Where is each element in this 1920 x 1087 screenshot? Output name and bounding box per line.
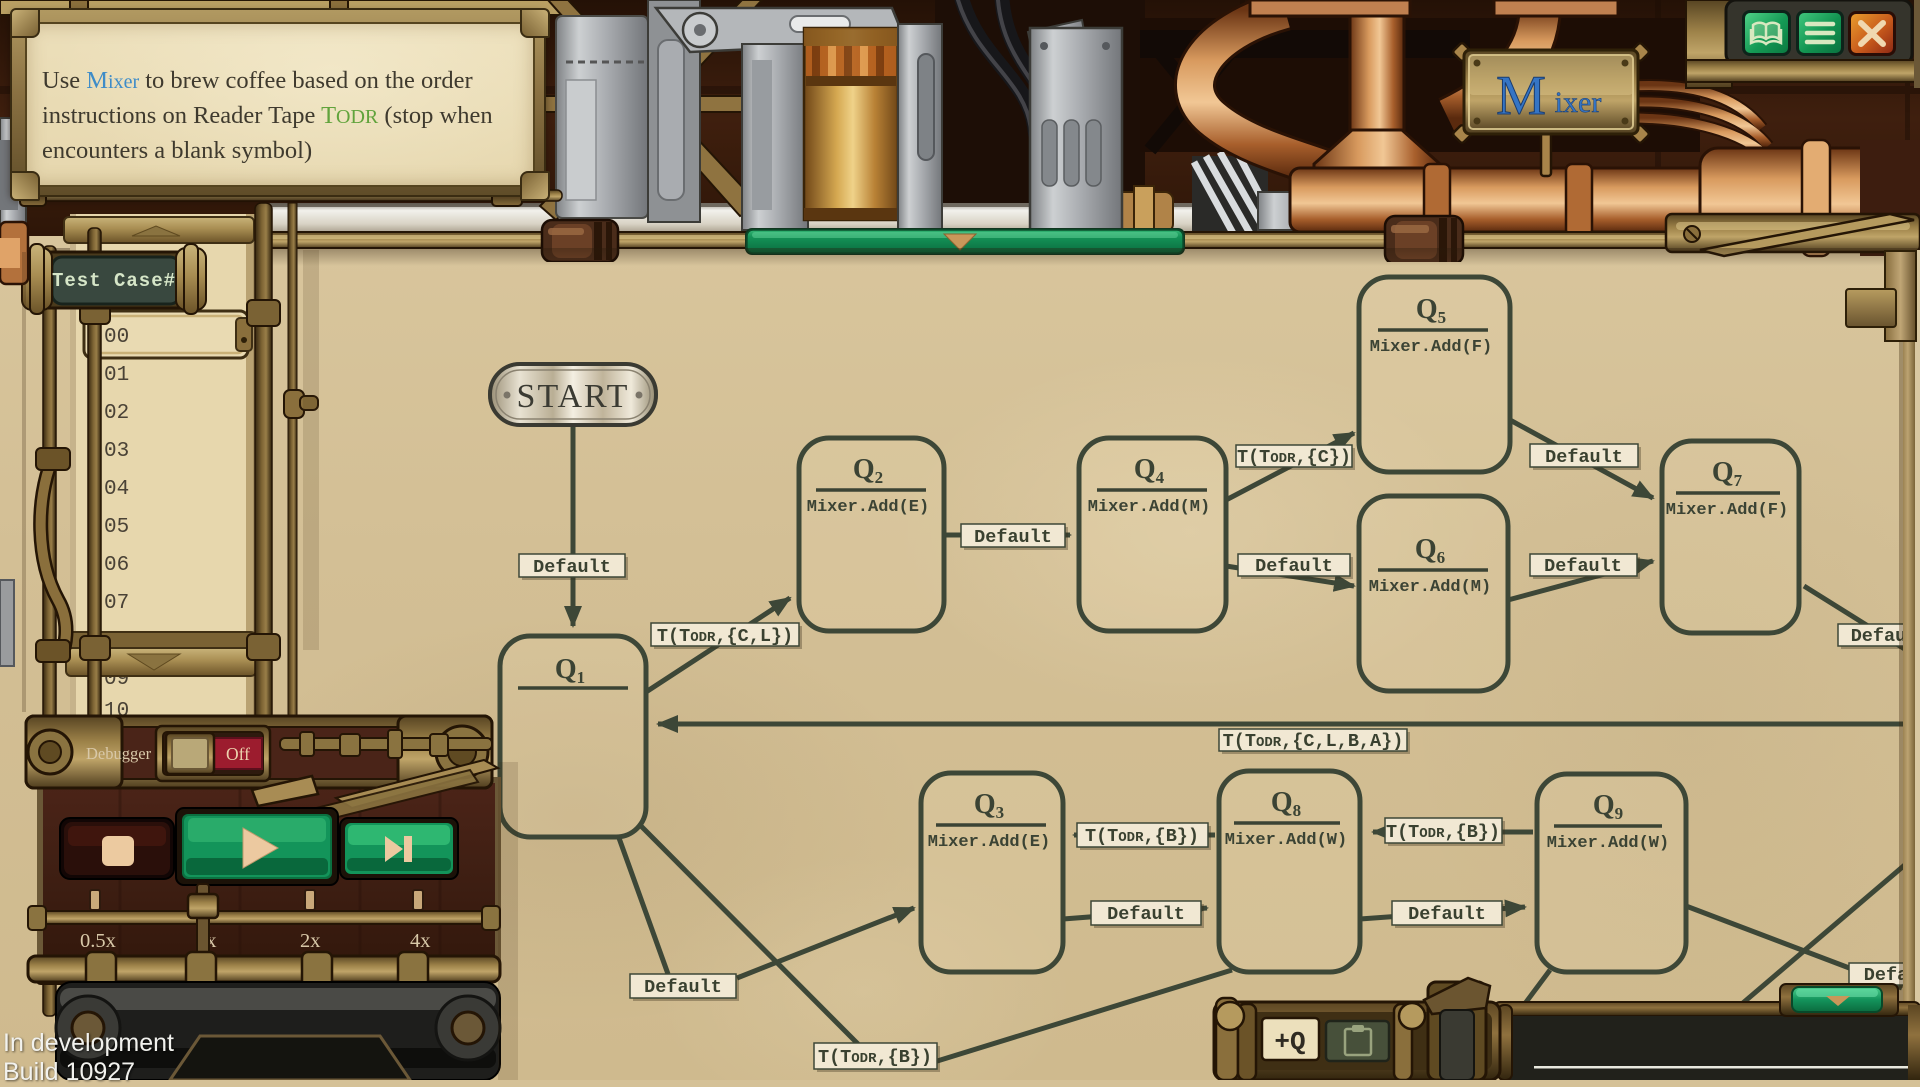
svg-text:Default: Default	[974, 527, 1052, 548]
svg-text:03: 03	[104, 440, 129, 463]
svg-text:Mixer.Add(F): Mixer.Add(F)	[1370, 338, 1492, 357]
svg-text:Default: Default	[1545, 447, 1623, 468]
svg-text:Mixer.Add(M): Mixer.Add(M)	[1088, 498, 1210, 517]
svg-text:05: 05	[104, 516, 129, 539]
svg-text:4x: 4x	[410, 930, 431, 952]
svg-text:T(TODR,{C,L}): T(TODR,{C,L})	[657, 626, 793, 647]
svg-text:Default: Default	[1255, 556, 1333, 577]
svg-text:+Q: +Q	[1274, 1027, 1305, 1057]
svg-text:Mixer.Add(F): Mixer.Add(F)	[1666, 501, 1788, 520]
svg-text:Test Case#: Test Case#	[52, 270, 176, 292]
svg-text:04: 04	[104, 478, 129, 501]
svg-text:02: 02	[104, 402, 129, 425]
svg-text:T(TODR,{C,L,B,A}): T(TODR,{C,L,B,A})	[1223, 731, 1404, 752]
svg-text:Default: Default	[1107, 904, 1185, 925]
svg-text:Mixer.Add(W): Mixer.Add(W)	[1225, 831, 1347, 850]
svg-text:Mixer.Add(E): Mixer.Add(E)	[928, 833, 1050, 852]
svg-text:Default: Default	[1544, 556, 1622, 577]
svg-text:Mixer.Add(M): Mixer.Add(M)	[1369, 578, 1491, 597]
svg-text:00: 00	[104, 326, 129, 349]
svg-text:0.5x: 0.5x	[80, 930, 116, 952]
svg-text:T(TODR,{C}): T(TODR,{C})	[1237, 447, 1351, 468]
svg-text:Off: Off	[226, 744, 250, 764]
svg-text:Debugger: Debugger	[86, 744, 152, 763]
svg-text:T(TODR,{B}): T(TODR,{B})	[1085, 826, 1199, 847]
svg-text:T(TODR,{B}): T(TODR,{B})	[818, 1047, 932, 1068]
svg-text:06: 06	[104, 554, 129, 577]
svg-text:Default: Default	[644, 977, 722, 998]
svg-text:2x: 2x	[300, 930, 321, 952]
svg-text:T(TODR,{B}): T(TODR,{B})	[1386, 822, 1500, 843]
svg-text:Mixer.Add(W): Mixer.Add(W)	[1547, 834, 1669, 853]
svg-text:01: 01	[104, 364, 129, 387]
svg-text:Default: Default	[1408, 904, 1486, 925]
svg-text:Mixer.Add(E): Mixer.Add(E)	[807, 498, 929, 517]
svg-text:07: 07	[104, 592, 129, 615]
